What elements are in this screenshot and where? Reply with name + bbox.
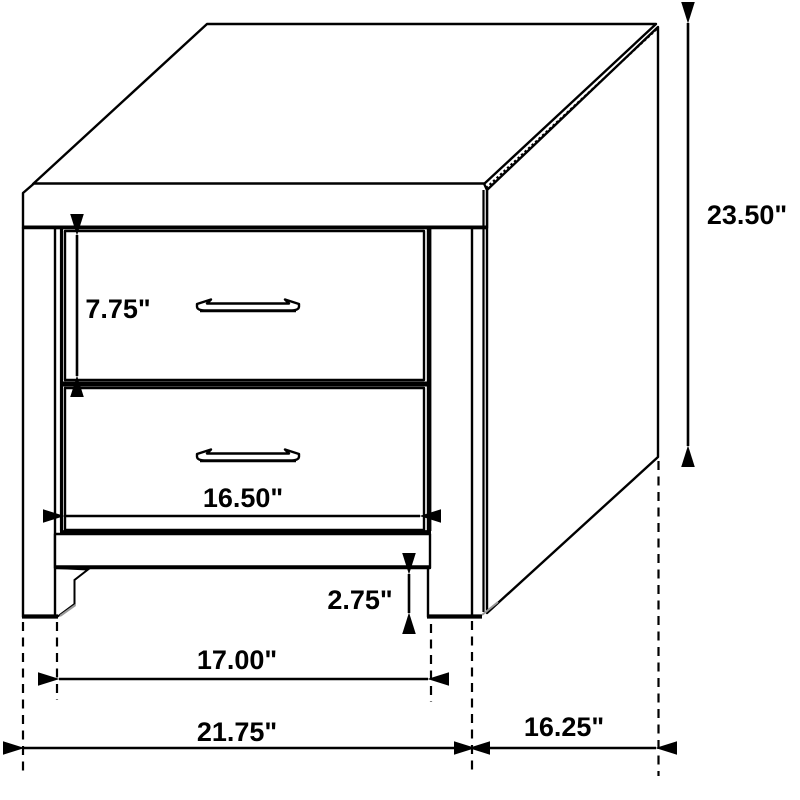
dim-side-depth-label: 16.25" [524,712,604,742]
top-front-band [23,184,487,229]
bottom-rail [55,534,430,568]
furniture-dimension-diagram: 7.75" 23.50" 16.50" 2.75" 17.00" 21.75" … [0,0,800,800]
left-leg [23,228,55,617]
dim-drawer-height-label: 7.75" [85,294,150,324]
nightstand-diagram-canvas: 7.75" 23.50" 16.50" 2.75" 17.00" 21.75" … [0,0,800,800]
dim-toe-kick-height-label: 2.75" [327,585,392,615]
dim-overall-width-label: 21.75" [197,717,277,747]
dim-overall-height-label: 23.50" [707,200,787,230]
right-leg [428,228,472,617]
dim-drawer-width-label: 16.50" [203,483,283,513]
dim-leg-span-width-label: 17.00" [197,645,277,675]
